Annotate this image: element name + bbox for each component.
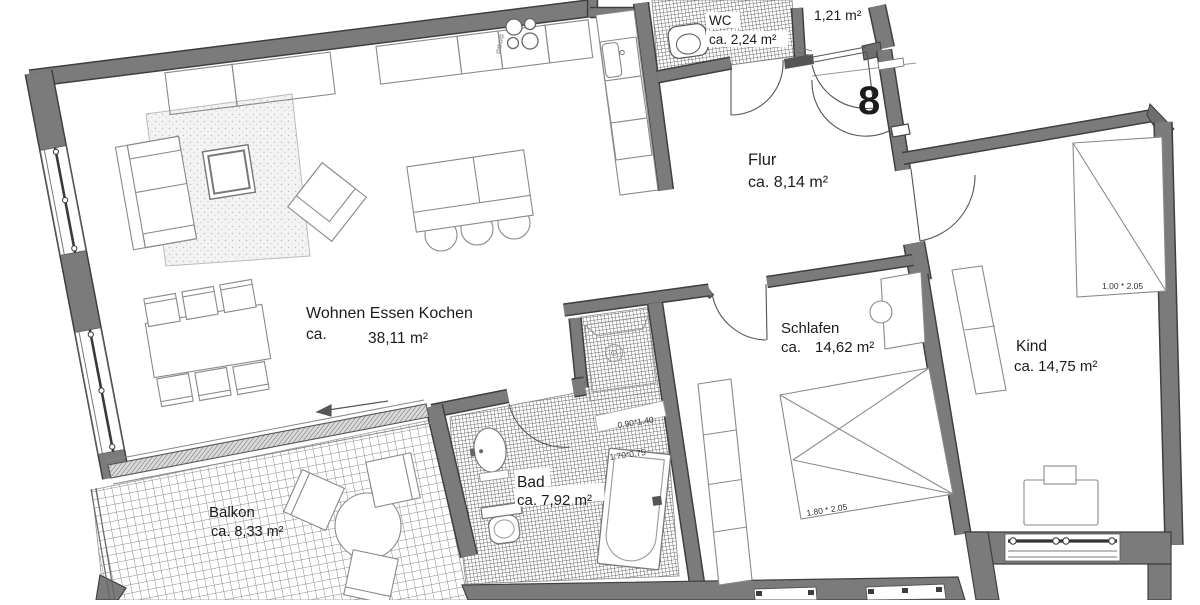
svg-text:ca. 14,75 m²: ca. 14,75 m² — [1014, 358, 1097, 375]
svg-text:ca.: ca. — [306, 326, 327, 343]
svg-text:ca. 8,14 m²: ca. 8,14 m² — [748, 174, 829, 191]
svg-text:ca. 7,92 m²: ca. 7,92 m² — [517, 492, 592, 509]
svg-text:Kind: Kind — [1016, 338, 1047, 355]
svg-text:ca.: ca. — [781, 339, 801, 356]
svg-text:Wohnen Essen Kochen: Wohnen Essen Kochen — [306, 305, 473, 322]
svg-text:1,21 m²: 1,21 m² — [814, 7, 862, 23]
svg-text:Balkon: Balkon — [209, 504, 255, 521]
svg-text:1.00 * 2.05: 1.00 * 2.05 — [1102, 281, 1143, 291]
svg-text:Schlafen: Schlafen — [781, 320, 839, 337]
svg-text:ca. 8,33 m²: ca. 8,33 m² — [211, 524, 284, 540]
svg-text:Flur: Flur — [748, 151, 777, 169]
svg-text:14,62 m²: 14,62 m² — [815, 339, 874, 356]
svg-text:ca. 2,24 m²: ca. 2,24 m² — [709, 32, 777, 47]
svg-text:WC: WC — [709, 13, 732, 28]
svg-text:38,11 m²: 38,11 m² — [368, 330, 428, 347]
svg-text:8: 8 — [858, 79, 880, 123]
